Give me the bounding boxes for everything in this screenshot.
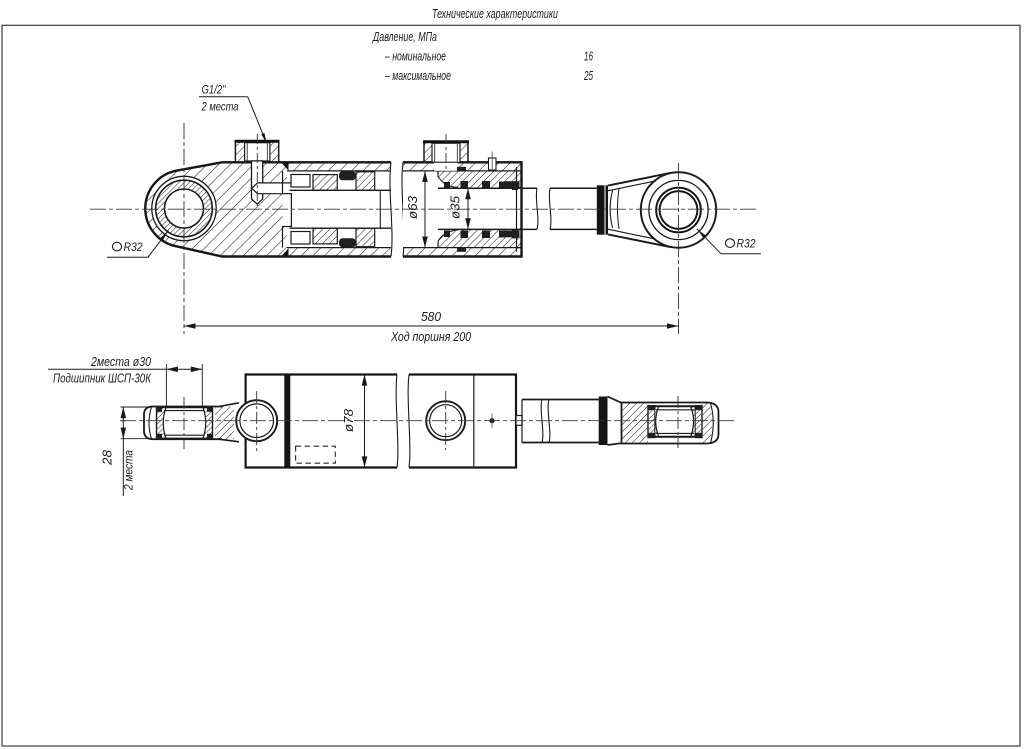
svg-text:ø35: ø35 xyxy=(448,195,463,219)
svg-text:2места ø30: 2места ø30 xyxy=(90,355,151,369)
svg-text:28: 28 xyxy=(101,450,115,466)
svg-text:Подшипник ШСП-30К: Подшипник ШСП-30К xyxy=(53,372,151,386)
svg-text:– номинальное: – номинальное xyxy=(384,50,446,64)
svg-text:Давление, МПа: Давление, МПа xyxy=(372,30,437,44)
svg-text:Ход поршня 200: Ход поршня 200 xyxy=(390,330,471,344)
svg-text:ø63: ø63 xyxy=(405,195,420,219)
svg-text:R32: R32 xyxy=(737,239,757,251)
svg-text:R32: R32 xyxy=(124,242,144,254)
svg-text:Технические характеристики: Технические характеристики xyxy=(432,6,558,21)
svg-text:– максимальное: – максимальное xyxy=(384,69,451,83)
svg-text:580: 580 xyxy=(421,310,441,324)
svg-text:G1/2": G1/2" xyxy=(202,85,227,97)
svg-text:2 места: 2 места xyxy=(201,102,239,114)
svg-text:25: 25 xyxy=(583,69,593,83)
svg-text:16: 16 xyxy=(584,50,593,64)
svg-text:ø78: ø78 xyxy=(341,408,356,432)
svg-text:2 места: 2 места xyxy=(122,450,136,491)
